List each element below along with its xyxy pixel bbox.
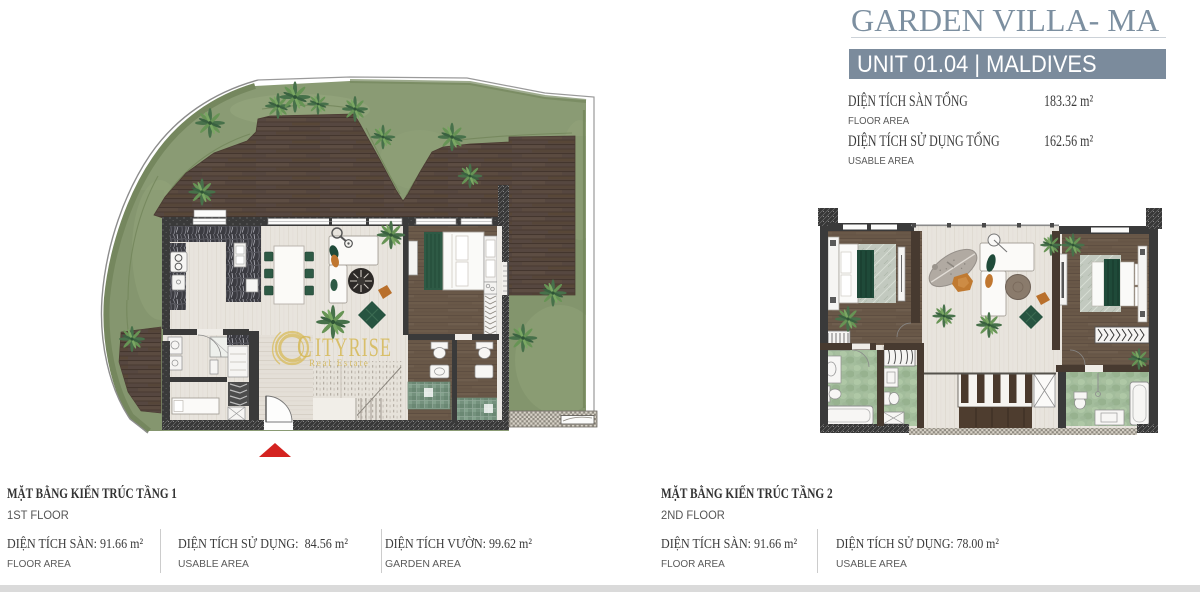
svg-text:Real Estate: Real Estate <box>309 358 370 368</box>
